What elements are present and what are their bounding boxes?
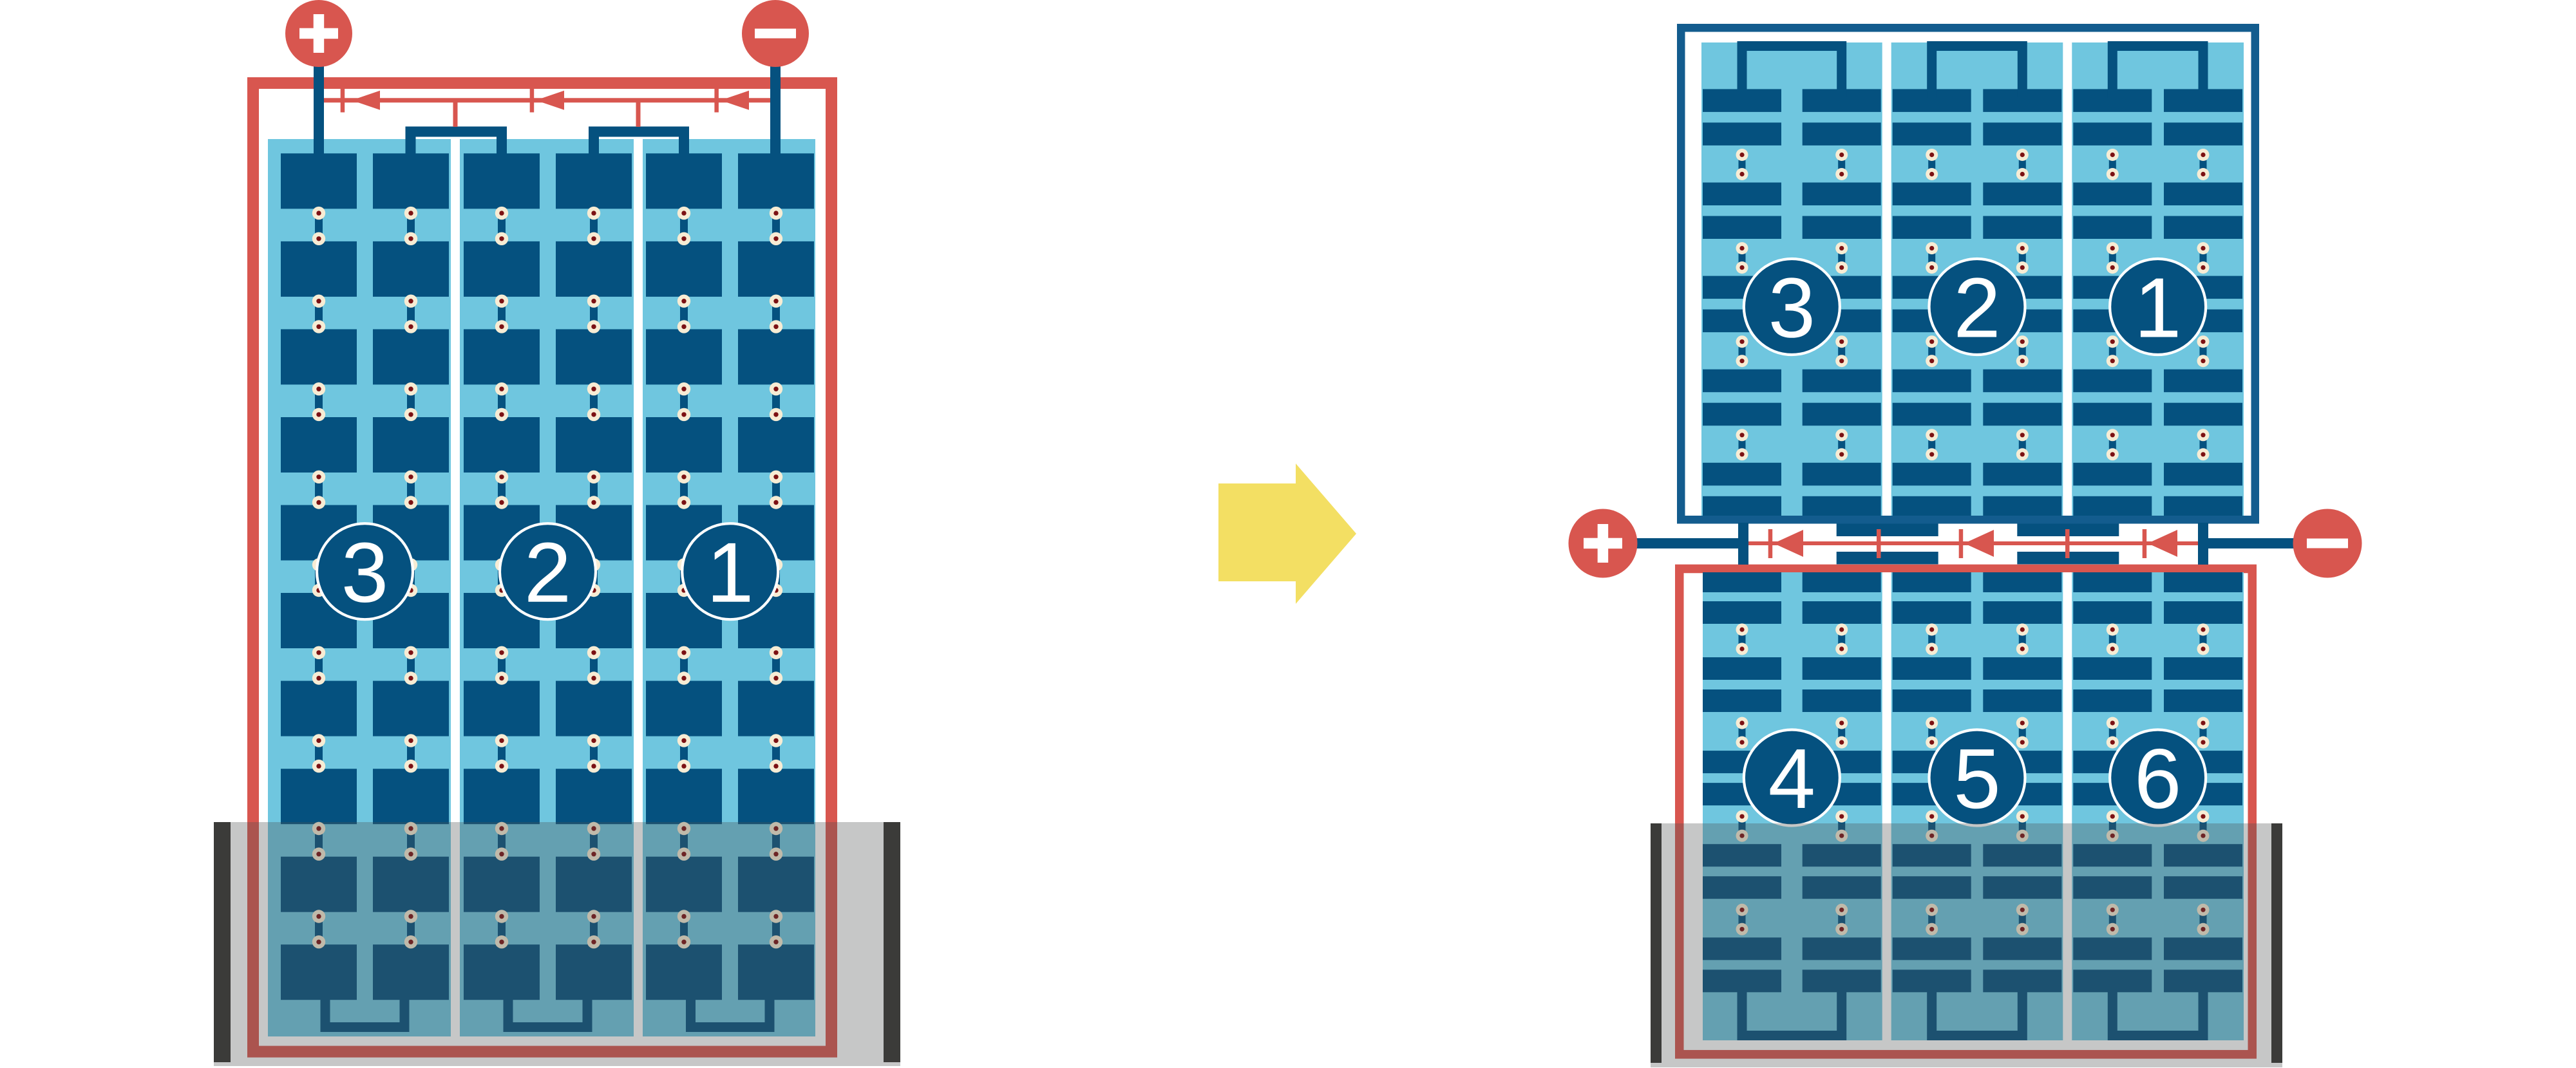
svg-text:5: 5	[1953, 731, 2000, 826]
svg-text:1: 1	[706, 525, 753, 620]
svg-text:2: 2	[524, 525, 571, 620]
svg-text:2: 2	[1953, 261, 2000, 355]
svg-text:6: 6	[2134, 731, 2181, 826]
svg-text:3: 3	[341, 525, 388, 620]
svg-text:3: 3	[1768, 261, 1815, 355]
svg-text:4: 4	[1768, 731, 1815, 826]
svg-text:1: 1	[2134, 261, 2181, 355]
